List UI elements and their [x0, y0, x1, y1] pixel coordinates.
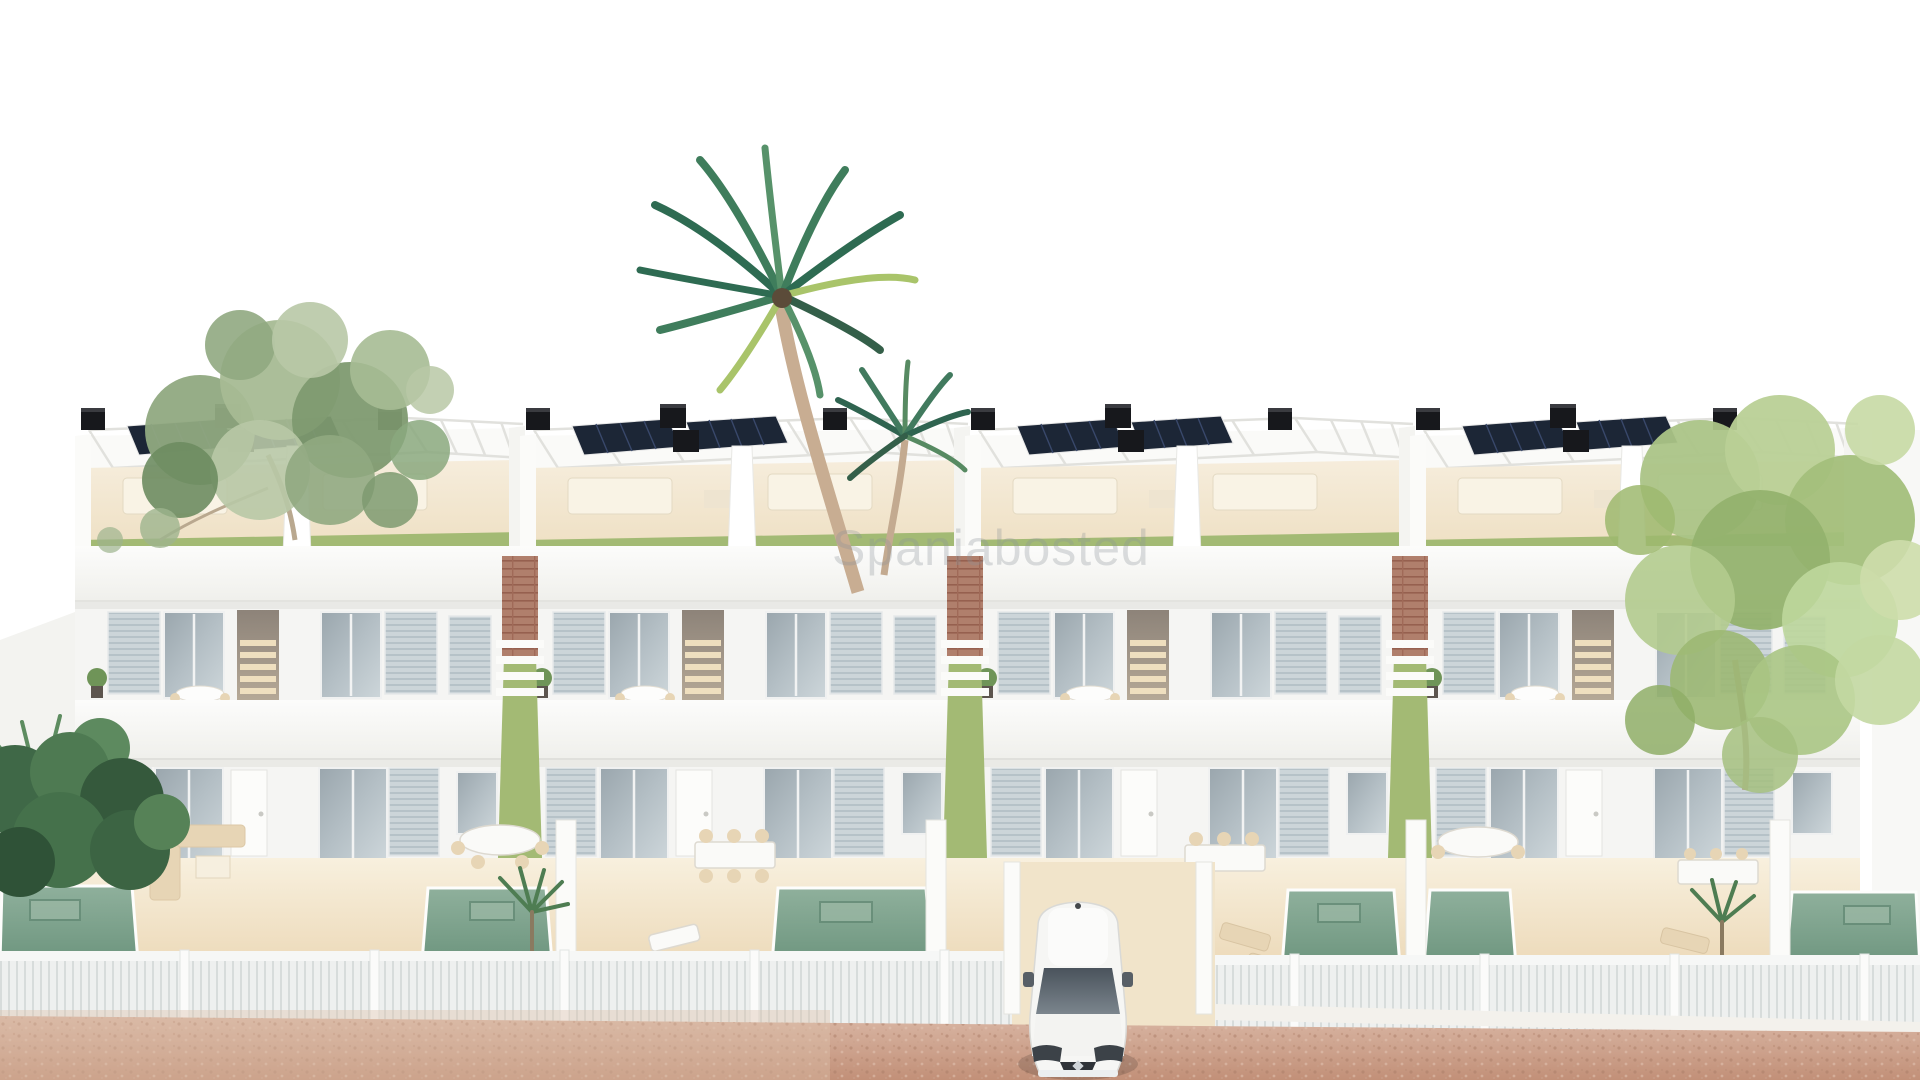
car-mirror-left: [1023, 972, 1034, 987]
driveway-wall: [1196, 862, 1212, 1014]
car-headlight-left: [1032, 1045, 1062, 1062]
divider-wall: [926, 820, 946, 968]
pool-5: [1424, 890, 1516, 966]
round-dining-table: [1438, 827, 1518, 857]
driveway-wall: [1004, 862, 1020, 1014]
fence-rail: [1215, 955, 1920, 965]
dining-table: [1678, 860, 1758, 884]
car-roof: [1048, 908, 1108, 966]
car-bumper: [1038, 1070, 1118, 1077]
dining-table: [695, 842, 775, 868]
sand-tint: [0, 1010, 830, 1080]
car-windshield: [1036, 968, 1120, 1014]
villa-block-2: [520, 404, 970, 968]
watermark: Spaniabosted: [832, 519, 1150, 577]
car-mirror-right: [1122, 972, 1133, 987]
round-dining-table: [460, 825, 540, 855]
grass-passage: [943, 656, 987, 858]
architectural-render: Spaniabosted: [0, 0, 1920, 1080]
coffee-table: [196, 856, 230, 878]
divider-wall: [1770, 820, 1790, 968]
car-headlight-right: [1094, 1045, 1124, 1062]
palm-crown: [772, 288, 792, 308]
fence-rail: [0, 951, 1012, 961]
divider-wall: [556, 820, 576, 968]
pool-1: [0, 886, 138, 962]
divider-wall: [1406, 820, 1426, 968]
car-antenna: [1075, 903, 1081, 909]
pool-4: [1282, 890, 1400, 966]
